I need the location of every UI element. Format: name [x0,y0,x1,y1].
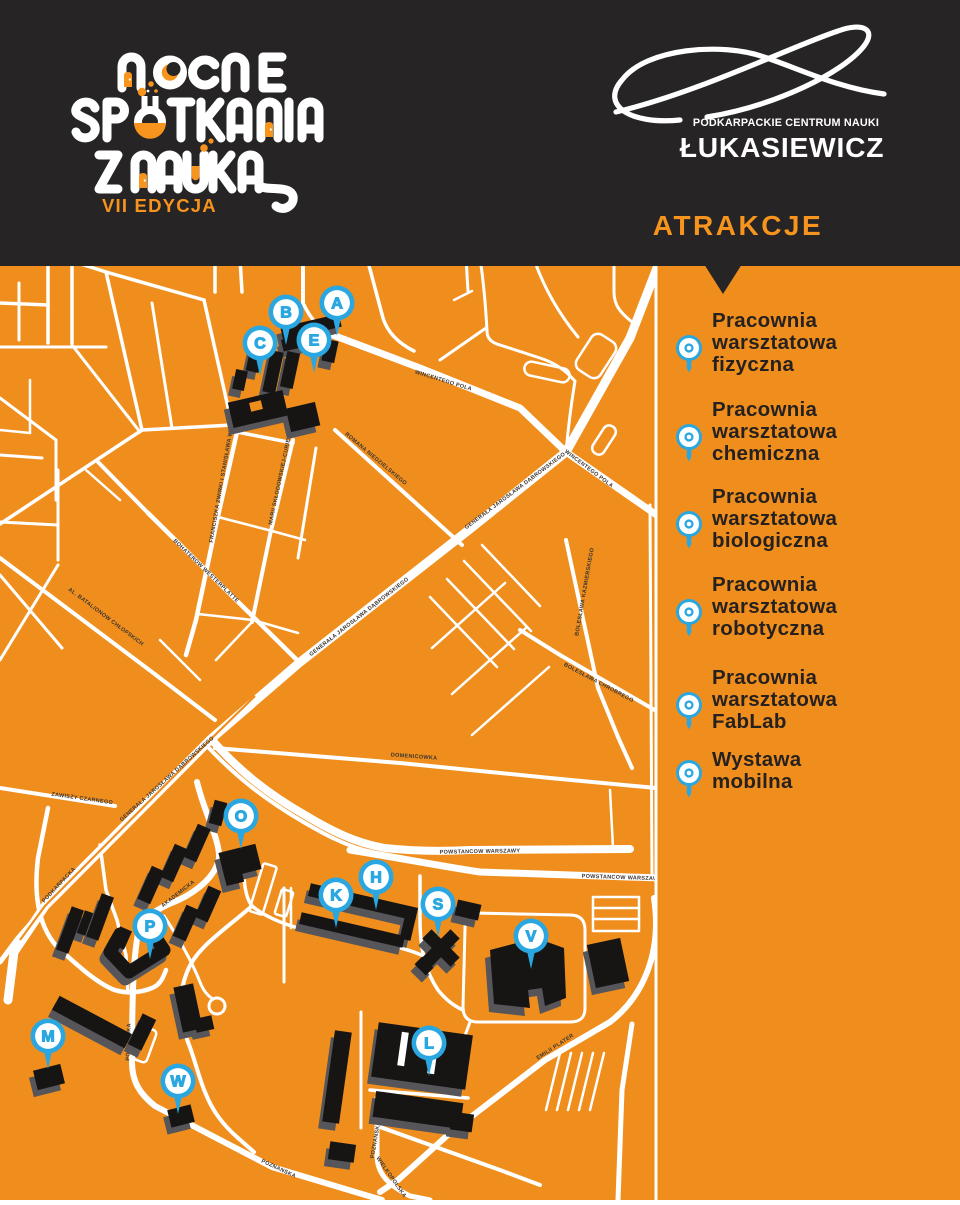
svg-text:ATRAKCJE: ATRAKCJE [653,210,823,241]
svg-text:biologiczna: biologiczna [712,529,828,552]
svg-text:H: H [370,870,382,887]
svg-text:fizyczna: fizyczna [712,353,794,376]
svg-text:chemiczna: chemiczna [712,442,820,465]
svg-text:robotyczna: robotyczna [712,617,825,640]
svg-text:V: V [526,929,537,946]
svg-text:warsztatowa: warsztatowa [711,595,837,618]
svg-text:C: C [254,336,266,353]
svg-text:warsztatowa: warsztatowa [711,688,837,711]
svg-text:Pracownia: Pracownia [712,485,818,508]
svg-text:FabLab: FabLab [712,710,787,733]
svg-text:mobilna: mobilna [712,770,793,793]
svg-text:K: K [330,888,342,905]
svg-text:L: L [424,1036,434,1053]
svg-text:A: A [331,296,343,313]
svg-text:VII EDYCJA: VII EDYCJA [102,195,217,216]
svg-text:Pracownia: Pracownia [712,398,818,421]
svg-text:warsztatowa: warsztatowa [711,507,837,530]
svg-text:PODKARPACKIE CENTRUM NAUKI: PODKARPACKIE CENTRUM NAUKI [693,117,879,129]
svg-text:ŁUKASIEWICZ: ŁUKASIEWICZ [680,131,885,163]
svg-text:Wystawa: Wystawa [712,748,802,771]
svg-text:M: M [41,1029,54,1046]
svg-text:P: P [145,919,156,936]
svg-text:warsztatowa: warsztatowa [711,420,837,443]
svg-text:S: S [433,897,444,914]
svg-text:B: B [280,305,292,322]
svg-text:O: O [235,809,247,826]
svg-text:Pracownia: Pracownia [712,309,818,332]
svg-text:Pracownia: Pracownia [712,573,818,596]
svg-text:Pracownia: Pracownia [712,666,818,689]
svg-text:W: W [170,1074,186,1091]
svg-text:warsztatowa: warsztatowa [711,331,837,354]
svg-text:E: E [309,333,320,350]
